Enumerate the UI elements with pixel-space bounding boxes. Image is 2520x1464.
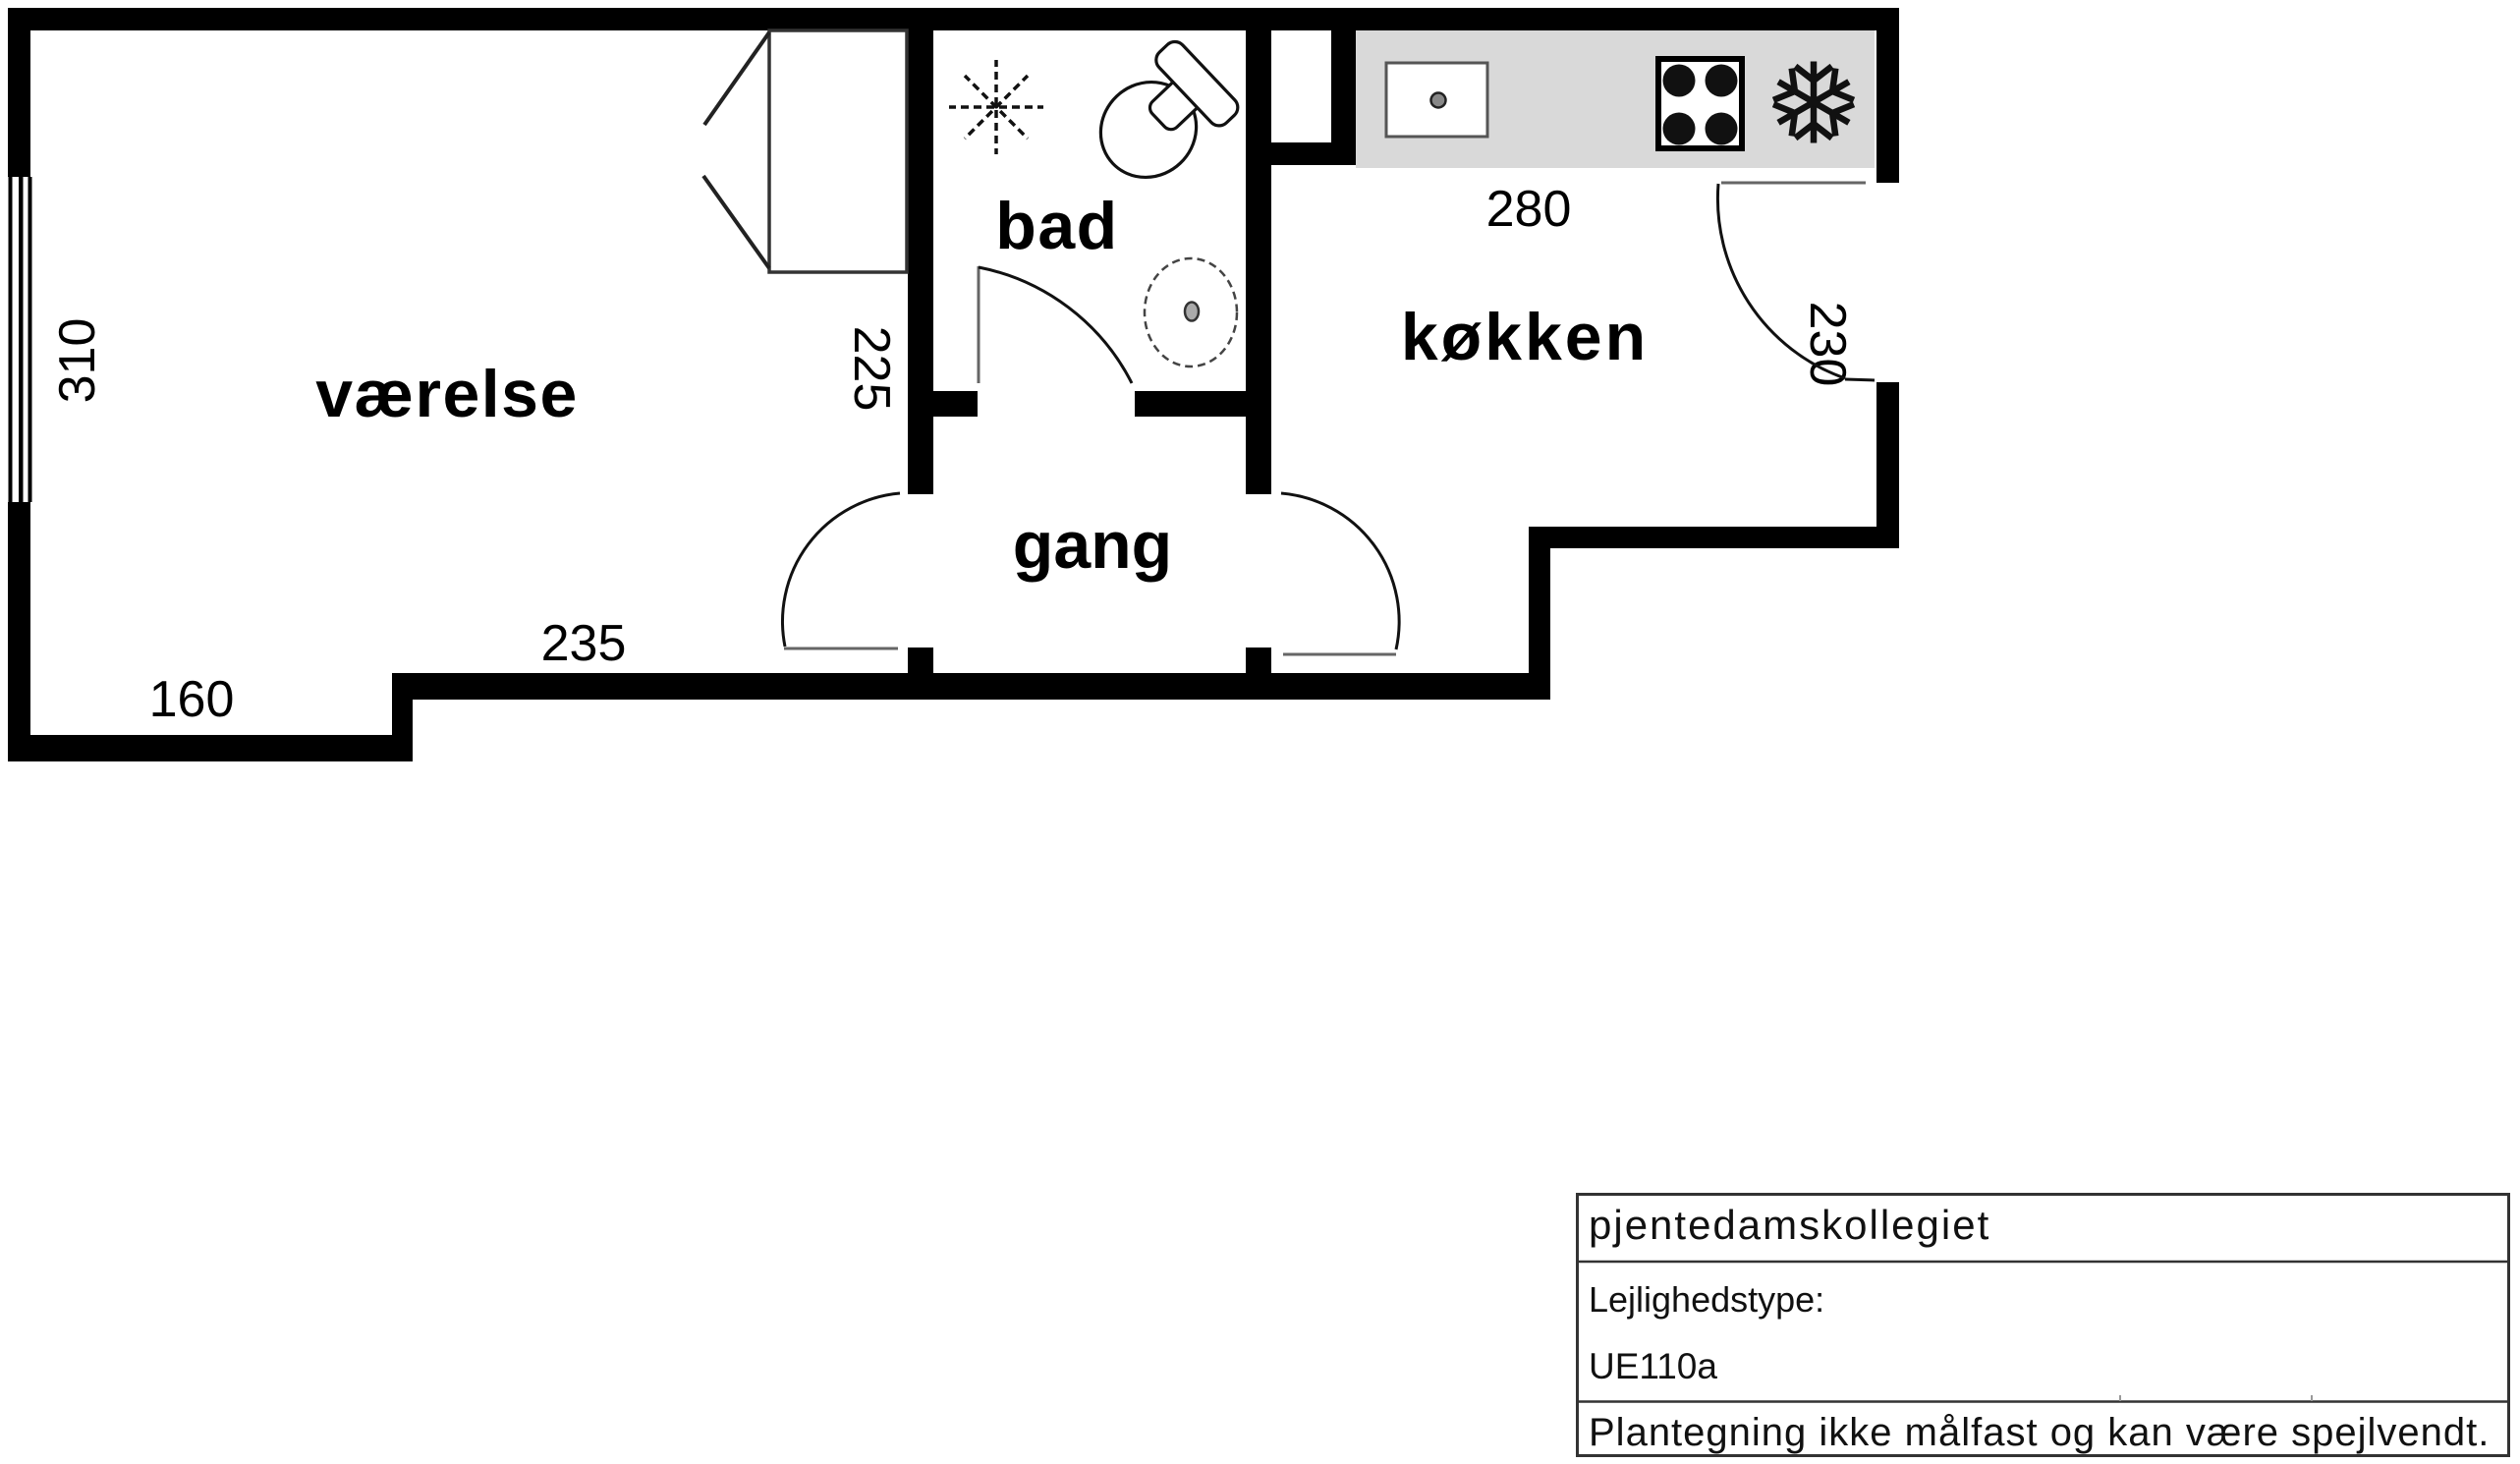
svg-text:160: 160 — [149, 671, 235, 728]
svg-text:235: 235 — [541, 615, 627, 672]
svg-text:230: 230 — [1799, 302, 1856, 387]
svg-text:køkken: køkken — [1401, 300, 1649, 374]
svg-text:Lejlighedstype:: Lejlighedstype: — [1589, 1279, 1824, 1320]
svg-text:gang: gang — [1013, 508, 1172, 583]
svg-text:værelse: værelse — [315, 357, 579, 431]
svg-text:bad: bad — [995, 189, 1118, 263]
svg-text:Plantegning ikke målfast og ka: Plantegning ikke målfast og kan være spe… — [1589, 1411, 2490, 1454]
svg-text:pjentedamskollegiet: pjentedamskollegiet — [1589, 1202, 1990, 1248]
svg-text:225: 225 — [843, 326, 900, 412]
svg-text:280: 280 — [1486, 181, 1572, 238]
svg-text:UE110a: UE110a — [1589, 1346, 1717, 1386]
svg-text:310: 310 — [49, 318, 106, 404]
